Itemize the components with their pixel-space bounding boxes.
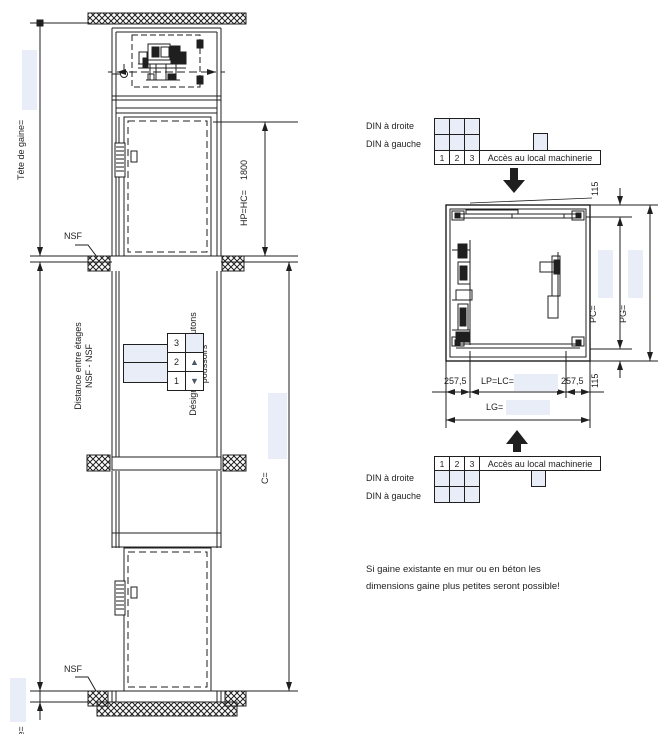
floor-number: 2: [449, 456, 465, 471]
din-droite-top-label: DIN à droite: [366, 121, 414, 132]
din-table-bottom: 1 2 3 Accès au local machinerie: [434, 456, 601, 503]
access-check-cell-bottom[interactable]: [531, 470, 546, 487]
pg-field[interactable]: [628, 250, 643, 298]
dim-257-left-label: 257,5: [444, 376, 467, 387]
din-cell[interactable]: [449, 486, 465, 503]
distance-etages-label: Distance entre étages NSF - NSF: [73, 318, 95, 414]
din-cell[interactable]: [464, 470, 480, 487]
din-cell[interactable]: [434, 134, 450, 151]
pc-field[interactable]: [598, 250, 613, 298]
access-check-cell-top[interactable]: [533, 133, 548, 151]
din-cell[interactable]: [464, 118, 480, 135]
din-cell[interactable]: [434, 118, 450, 135]
down-button[interactable]: ▼: [185, 371, 204, 391]
din-gauche-top-label: DIN à gauche: [366, 139, 421, 150]
fosse-field[interactable]: [10, 678, 26, 722]
lp-lc-label: LP=LC=: [481, 376, 514, 387]
din-table-top: 1 2 3 Accès au local machinerie: [434, 118, 601, 165]
plan-rail-detail: [540, 252, 560, 318]
access-machine-room-label: Accès au local machinerie: [479, 150, 601, 165]
pc-label: PC=: [588, 305, 599, 323]
hp-hc-value: 1800: [239, 160, 249, 180]
fosse-label: fosse=: [16, 726, 27, 734]
nsf-bottom-label: NSF: [64, 664, 82, 675]
din-cell[interactable]: [434, 486, 450, 503]
lp-lc-field[interactable]: [514, 374, 558, 391]
plan-machine-detail: [452, 240, 472, 345]
floor-button-3: 3: [167, 333, 186, 353]
note-line-1: Si gaine existante en mur ou en béton le…: [366, 564, 541, 575]
floor-button-2: 2: [167, 352, 186, 372]
din-cell[interactable]: [449, 470, 465, 487]
drawing-sheet: Tête de gaine= HP=HC=1800 C= fosse= Dist…: [0, 0, 672, 734]
arrow-down-icon: [503, 168, 525, 193]
din-cell[interactable]: [449, 118, 465, 135]
din-cell[interactable]: [464, 486, 480, 503]
c-dim-field[interactable]: [268, 393, 287, 459]
din-gauche-bottom-label: DIN à gauche: [366, 491, 421, 502]
distance-field-2[interactable]: [123, 362, 169, 383]
dim-257-right-label: 257,5: [561, 376, 584, 387]
lg-label: LG=: [486, 402, 503, 413]
floor-number: 3: [464, 456, 480, 471]
c-dim-label: C=: [260, 472, 271, 484]
plan-view: [446, 198, 592, 361]
dim-115-bottom-label: 115: [590, 374, 601, 388]
button-panel: 3 2 ▲ 1 ▼: [167, 333, 204, 391]
machine-detail: [112, 40, 203, 84]
din-cell[interactable]: [449, 134, 465, 151]
arrow-up-icon: [506, 430, 528, 452]
floor-button-1: 1: [167, 371, 186, 391]
din-cell[interactable]: [464, 134, 480, 151]
floor-number: 1: [434, 456, 450, 471]
pg-label: PG=: [618, 305, 629, 323]
note-line-2: dimensions gaine plus petites seront pos…: [366, 581, 560, 592]
din-droite-bottom-label: DIN à droite: [366, 473, 414, 484]
lg-field[interactable]: [506, 400, 550, 415]
distance-field-1[interactable]: [123, 344, 169, 364]
hp-hc-dimension-label: HP=HC=1800: [239, 160, 250, 226]
panel-blank-cell[interactable]: [185, 333, 204, 353]
hp-hc-label: HP=HC=: [239, 190, 249, 226]
floor-number: 3: [464, 150, 480, 165]
triangle-down-icon: ▼: [190, 376, 199, 386]
din-cell[interactable]: [434, 470, 450, 487]
floor-number: 2: [449, 150, 465, 165]
technical-drawing: [0, 0, 672, 734]
tete-de-gaine-label: Tête de gaine=: [16, 120, 27, 180]
nsf-top-label: NSF: [64, 231, 82, 242]
dim-115-top-label: 115: [590, 182, 601, 196]
up-button[interactable]: ▲: [185, 352, 204, 372]
triangle-up-icon: ▲: [190, 357, 199, 367]
floor-number: 1: [434, 150, 450, 165]
tete-de-gaine-field[interactable]: [22, 50, 37, 110]
access-machine-room-label: Accès au local machinerie: [479, 456, 601, 471]
